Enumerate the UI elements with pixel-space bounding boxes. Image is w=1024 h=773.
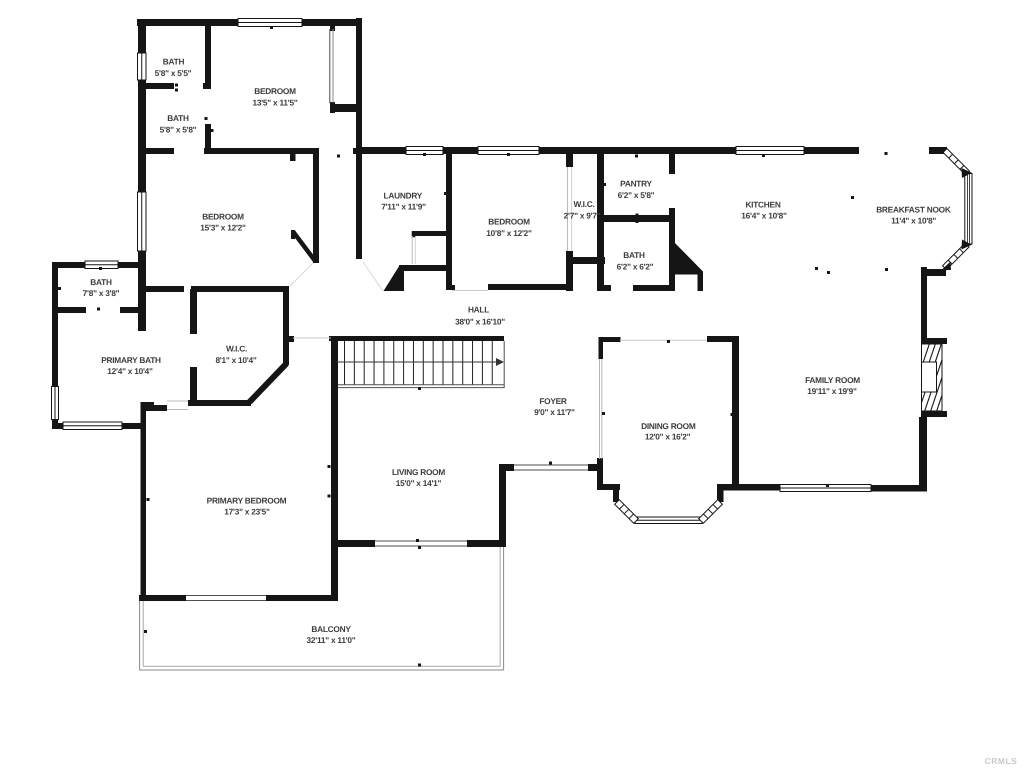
svg-text:CRMLS: CRMLS bbox=[985, 756, 1018, 766]
svg-text:16'4" x 10'8": 16'4" x 10'8" bbox=[741, 211, 787, 221]
svg-text:BREAKFAST NOOK: BREAKFAST NOOK bbox=[876, 204, 951, 214]
svg-text:BATH: BATH bbox=[623, 250, 645, 260]
svg-text:2'7" x 9'7": 2'7" x 9'7" bbox=[564, 210, 601, 220]
svg-text:LAUNDRY: LAUNDRY bbox=[384, 190, 423, 200]
svg-text:5'8" x 5'5": 5'8" x 5'5" bbox=[155, 68, 192, 78]
svg-text:BALCONY: BALCONY bbox=[311, 624, 351, 634]
svg-text:LIVING ROOM: LIVING ROOM bbox=[392, 467, 445, 477]
svg-text:6'2" x 5'8": 6'2" x 5'8" bbox=[618, 190, 655, 200]
svg-text:6'2" x 6'2": 6'2" x 6'2" bbox=[617, 261, 654, 271]
svg-text:PANTRY: PANTRY bbox=[620, 179, 652, 189]
svg-text:BEDROOM: BEDROOM bbox=[488, 216, 530, 226]
svg-text:32'11" x 11'0": 32'11" x 11'0" bbox=[307, 635, 356, 645]
svg-text:12'0" x 16'2": 12'0" x 16'2" bbox=[645, 432, 691, 442]
svg-text:7'8" x 3'8": 7'8" x 3'8" bbox=[83, 288, 120, 298]
svg-text:12'4" x 10'4": 12'4" x 10'4" bbox=[107, 366, 153, 376]
svg-text:5'8" x 5'8": 5'8" x 5'8" bbox=[160, 125, 197, 135]
svg-text:W.I.C.: W.I.C. bbox=[573, 199, 594, 209]
svg-text:13'5" x 11'5": 13'5" x 11'5" bbox=[252, 98, 297, 108]
svg-text:10'8" x 12'2": 10'8" x 12'2" bbox=[486, 228, 532, 238]
svg-text:15'0" x 14'1": 15'0" x 14'1" bbox=[396, 478, 442, 488]
svg-text:W.I.C.: W.I.C. bbox=[226, 344, 247, 354]
svg-text:KITCHEN: KITCHEN bbox=[745, 200, 780, 210]
svg-text:8'1" x 10'4": 8'1" x 10'4" bbox=[215, 355, 256, 365]
svg-text:BEDROOM: BEDROOM bbox=[254, 86, 296, 96]
svg-text:PRIMARY BEDROOM: PRIMARY BEDROOM bbox=[207, 495, 287, 505]
svg-text:15'3" x 12'2": 15'3" x 12'2" bbox=[200, 222, 246, 232]
svg-text:7'11" x 11'9": 7'11" x 11'9" bbox=[381, 201, 426, 211]
svg-text:FAMILY ROOM: FAMILY ROOM bbox=[805, 375, 860, 385]
svg-text:HALL: HALL bbox=[468, 304, 489, 314]
svg-text:PRIMARY BATH: PRIMARY BATH bbox=[101, 355, 161, 365]
svg-text:11'4" x 10'8": 11'4" x 10'8" bbox=[891, 215, 936, 225]
svg-text:9'0" x 11'7": 9'0" x 11'7" bbox=[534, 407, 575, 417]
svg-text:38'0" x 16'10": 38'0" x 16'10" bbox=[455, 317, 505, 327]
svg-text:BATH: BATH bbox=[90, 277, 112, 287]
svg-text:BATH: BATH bbox=[167, 113, 189, 123]
svg-text:FOYER: FOYER bbox=[539, 396, 567, 406]
svg-text:17'3" x 23'5": 17'3" x 23'5" bbox=[224, 507, 270, 517]
svg-text:DINING ROOM: DINING ROOM bbox=[641, 421, 696, 431]
svg-text:BATH: BATH bbox=[163, 56, 185, 66]
svg-text:BEDROOM: BEDROOM bbox=[202, 211, 244, 221]
svg-text:19'11" x 19'9": 19'11" x 19'9" bbox=[807, 386, 857, 396]
